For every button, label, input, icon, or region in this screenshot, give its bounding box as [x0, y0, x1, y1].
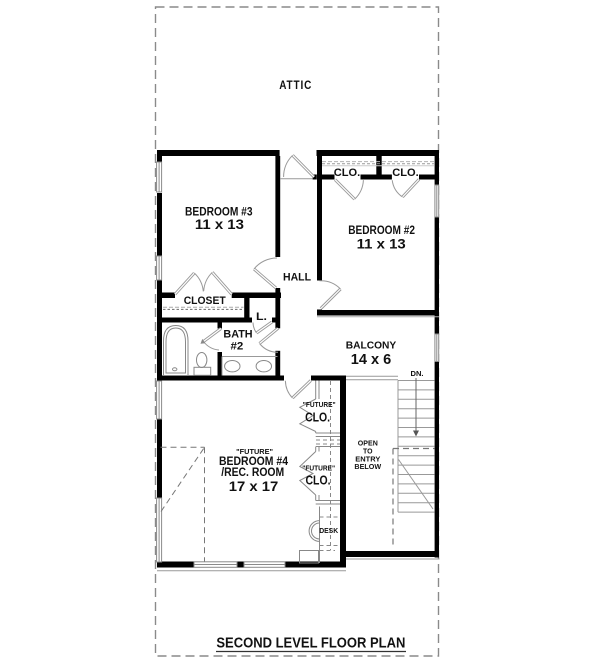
svg-text:HALL: HALL — [283, 272, 311, 284]
svg-text:#2: #2 — [231, 341, 244, 353]
svg-text:11 x 13: 11 x 13 — [195, 216, 244, 232]
svg-text:DESK: DESK — [319, 528, 338, 535]
svg-text:ENTRY: ENTRY — [355, 457, 380, 464]
svg-text:/REC. ROOM: /REC. ROOM — [221, 467, 284, 479]
svg-text:L.: L. — [256, 311, 267, 323]
svg-text:14 x 6: 14 x 6 — [351, 352, 392, 368]
svg-text:CLOSET: CLOSET — [184, 295, 226, 307]
svg-text:CLO.: CLO. — [305, 410, 330, 425]
svg-text:"FUTURE": "FUTURE" — [302, 465, 335, 472]
svg-text:"FUTURE": "FUTURE" — [303, 402, 336, 409]
svg-text:CLO.: CLO. — [392, 167, 419, 179]
svg-text:BALCONY: BALCONY — [346, 339, 397, 351]
svg-text:17 x 17: 17 x 17 — [229, 479, 279, 494]
svg-text:SECOND LEVEL FLOOR PLAN: SECOND LEVEL FLOOR PLAN — [216, 636, 405, 652]
svg-text:11 x 13: 11 x 13 — [357, 235, 406, 251]
svg-text:CLO.: CLO. — [306, 473, 331, 488]
svg-text:TO: TO — [363, 448, 373, 455]
svg-text:DN.: DN. — [411, 369, 424, 378]
svg-text:ATTIC: ATTIC — [279, 80, 312, 92]
svg-text:OPEN: OPEN — [358, 440, 378, 447]
svg-text:BATH: BATH — [223, 328, 252, 340]
svg-text:CLO.: CLO. — [334, 167, 361, 179]
svg-text:BELOW: BELOW — [354, 464, 381, 471]
